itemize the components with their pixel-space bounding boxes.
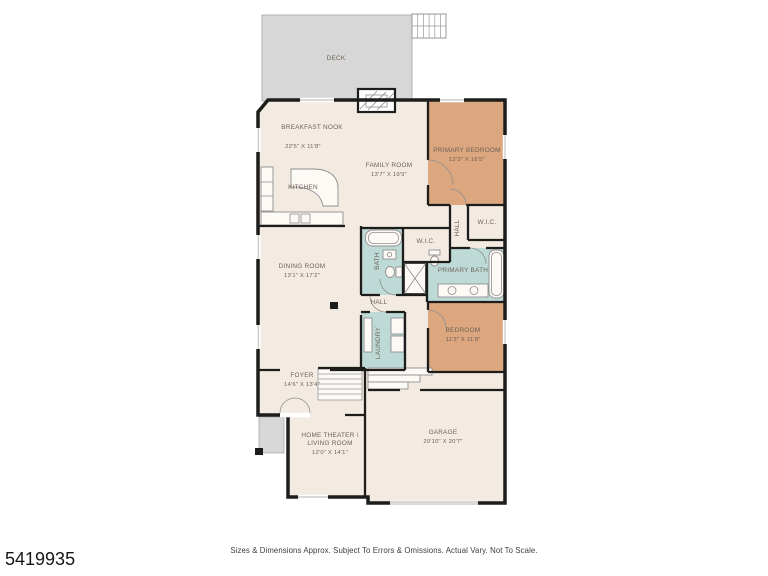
room-label-foyer: FOYER bbox=[290, 372, 313, 379]
room-dims-garage: 20'10" X 20'7" bbox=[423, 439, 462, 445]
room-label-hall: HALL bbox=[371, 299, 388, 306]
room-label-primary-bedroom: PRIMARY BEDROOM bbox=[433, 147, 500, 154]
garage-step bbox=[368, 375, 420, 382]
washer bbox=[391, 318, 404, 334]
toilet-bowl bbox=[386, 267, 395, 278]
front-stoop bbox=[259, 417, 284, 453]
room-label-breakfast-nook: BREAKFAST NOOK bbox=[281, 124, 343, 131]
room-dims-foyer: 14'6" X 13'4" bbox=[284, 382, 320, 388]
room-label-laundry: LAUNDRY bbox=[375, 326, 382, 359]
front-door-opening bbox=[280, 413, 310, 418]
disclaimer-text: Sizes & Dimensions Approx. Subject To Er… bbox=[230, 546, 537, 555]
garage-step bbox=[368, 382, 408, 389]
room-dims-home-theater: 12'0" X 14'1" bbox=[312, 450, 348, 456]
room-label-dining-room: DINING ROOM bbox=[279, 263, 326, 270]
dryer bbox=[391, 336, 404, 352]
laundry-counter bbox=[364, 318, 372, 352]
room-label-hall-upper: HALL bbox=[454, 219, 461, 236]
room-label-home-theater-1: HOME THEATER \ bbox=[301, 432, 358, 439]
room-label-primary-bath: PRIMARY BATH bbox=[438, 267, 488, 274]
room-dims-family-room: 13'7" X 19'9" bbox=[371, 172, 407, 178]
room-dims-breakfast-nook: 22'5" X 11'8" bbox=[285, 144, 320, 150]
room-dims-primary-bedroom: 12'3" X 16'5" bbox=[449, 157, 485, 163]
structural-post bbox=[330, 302, 338, 309]
room-label-garage: GARAGE bbox=[429, 429, 458, 436]
garage-door bbox=[390, 501, 478, 506]
room-label-wic-hall: W.I.C. bbox=[417, 238, 436, 245]
foyer-stairs bbox=[318, 369, 362, 400]
floorplan-canvas: DECK bbox=[0, 0, 768, 576]
room-label-deck: DECK bbox=[327, 55, 346, 62]
room-label-family-room: FAMILY ROOM bbox=[366, 162, 413, 169]
room-label-bedroom: BEDROOM bbox=[446, 327, 481, 334]
room-dims-bedroom: 11'3" X 11'8" bbox=[445, 337, 480, 343]
toilet-tank bbox=[396, 267, 402, 277]
deck-stairs bbox=[412, 14, 446, 38]
room-label-home-theater-2: LIVING ROOM bbox=[307, 440, 352, 447]
porch-post bbox=[255, 448, 263, 455]
primary-vanity bbox=[438, 284, 488, 297]
kitchen-counter-left bbox=[261, 167, 273, 211]
room-label-bath: BATH bbox=[374, 252, 381, 270]
mls-number: 5419935 bbox=[5, 549, 75, 569]
room-label-wic-primary: W.I.C. bbox=[478, 219, 497, 226]
room-dims-dining-room: 13'1" X 17'2" bbox=[284, 273, 320, 279]
bath-sink bbox=[383, 250, 396, 259]
room-label-kitchen: KITCHEN bbox=[288, 184, 318, 191]
primary-toilet-tank bbox=[429, 250, 440, 255]
